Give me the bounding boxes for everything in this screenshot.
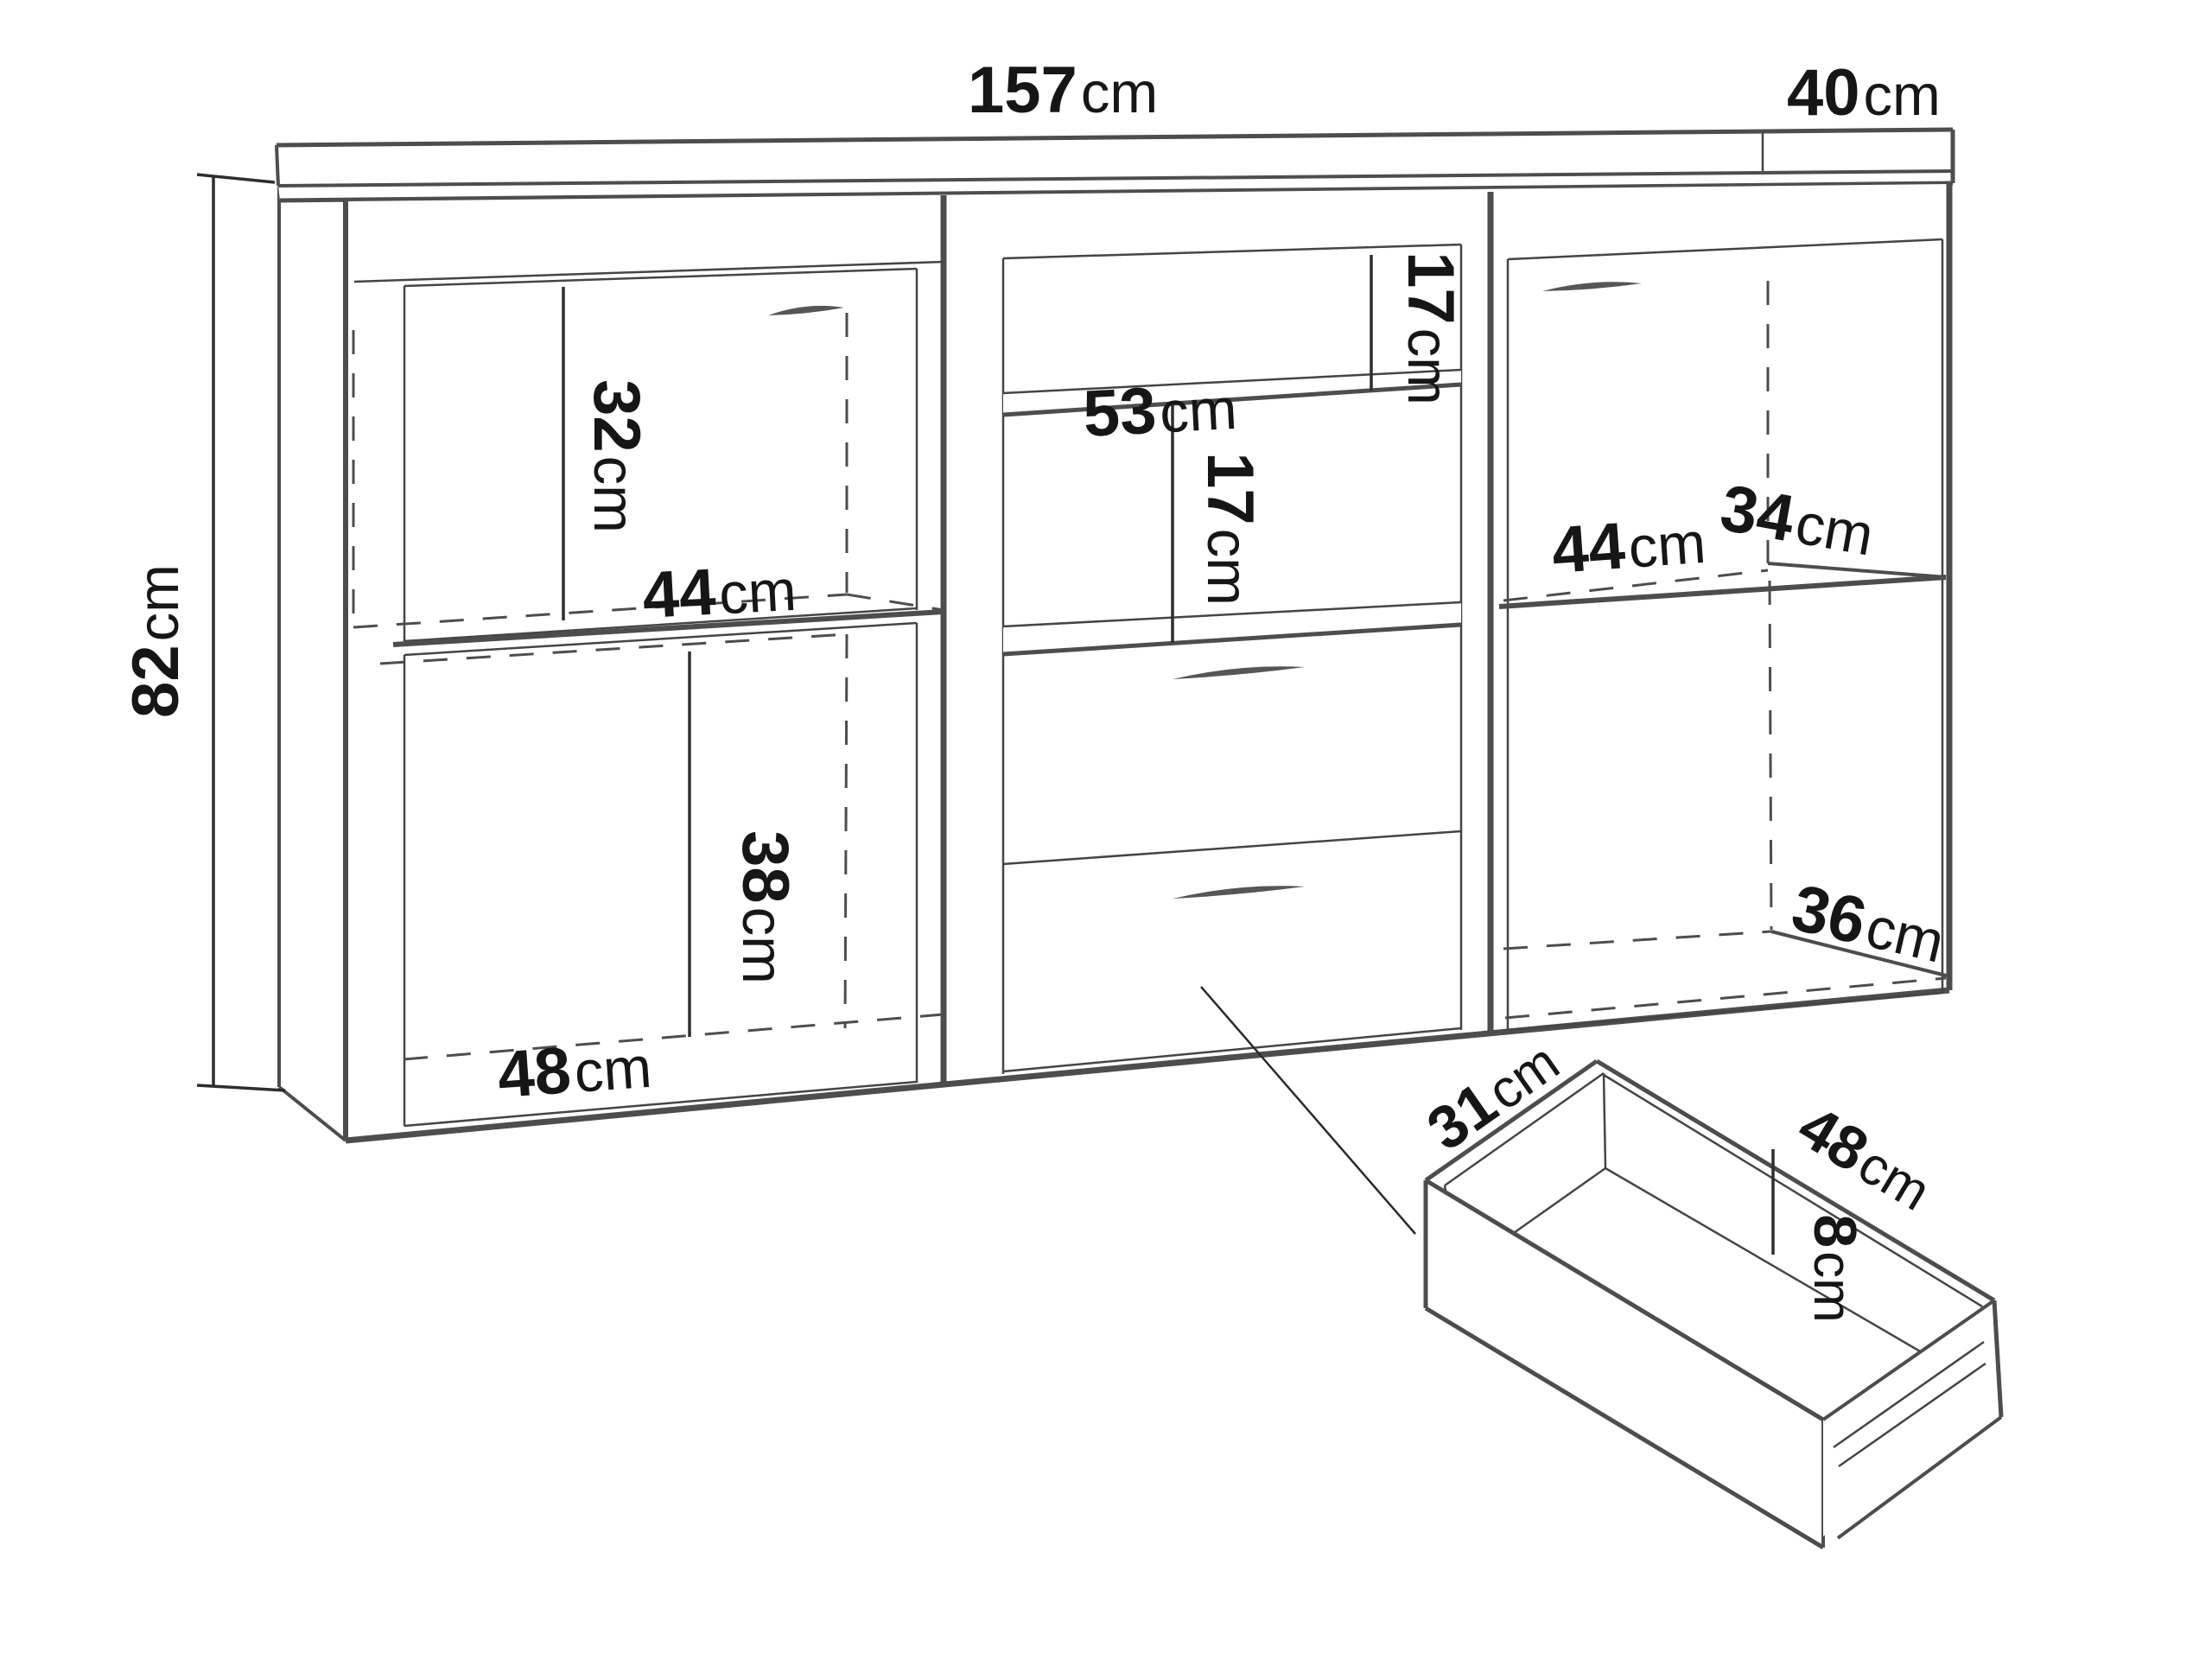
dim-label-82cm: 82cm: [119, 564, 193, 718]
furniture-dimension-diagram: 157cm 40cm 82cm 32cm 44cm 53cm 17cm 17cm…: [0, 0, 2212, 1659]
dim-label-17cm-top: 17cm: [1394, 251, 1467, 405]
dim-label-32cm: 32cm: [580, 379, 653, 533]
drawer-detail: [1426, 1061, 2013, 1555]
dim-label-8cm: 8cm: [1802, 1214, 1869, 1323]
dim-label-38cm: 38cm: [728, 830, 802, 984]
shadow-right: [1952, 194, 1982, 998]
overall-dimensions: [197, 175, 285, 1090]
left-side-panel: [279, 187, 346, 1141]
carcass-outline: [346, 184, 1949, 1141]
dim-label-157cm: 157cm: [968, 54, 1158, 127]
dim-label-17cm-mid: 17cm: [1193, 452, 1267, 606]
cabinet-drawing: [197, 130, 1982, 1180]
diagram-canvas: 157cm 40cm 82cm 32cm 44cm 53cm 17cm 17cm…: [0, 0, 2212, 1659]
dim-label-40cm: 40cm: [1787, 56, 1941, 130]
